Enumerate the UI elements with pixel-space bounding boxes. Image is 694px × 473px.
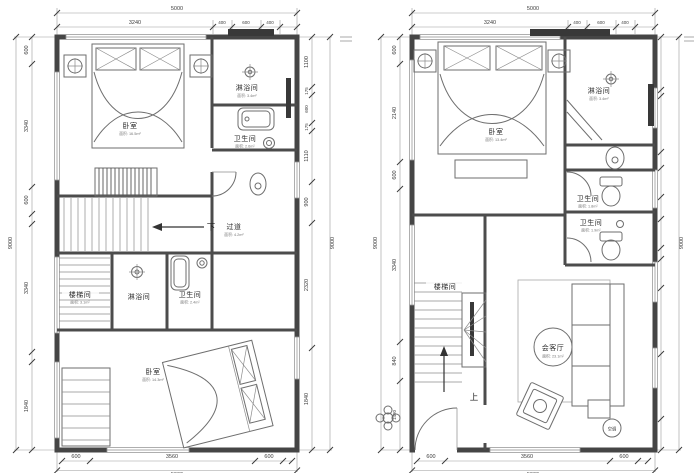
room-area: 面积: 3.1m²	[70, 300, 90, 305]
room-label: 卫生间	[580, 218, 603, 227]
room-toilet-lower: 卫生间 面积: 1.9m²	[567, 218, 624, 262]
dim-label: 600	[597, 20, 605, 25]
floor-plan-drawing: 5000 3240 400 600 400 9000 600 3340 600 …	[0, 0, 694, 473]
dim-label: 3240	[129, 20, 141, 26]
dim-label: 400	[218, 20, 226, 25]
room-bedroom: 卧室 面积: 13.4m²	[414, 42, 570, 178]
room-area: 面积: 13.4m²	[485, 137, 507, 142]
room-label: 楼梯间	[69, 290, 92, 299]
ceiling-lamp-icon	[548, 50, 570, 72]
room-shower: 淋浴间 面积: 3.4m²	[567, 71, 654, 140]
dim-bottom: 600 3560 600 5000	[409, 454, 658, 473]
dim-label: 400	[621, 20, 629, 25]
dim-left: 9000 600 2140 600 3340 840 1480	[373, 34, 403, 453]
dim-label: 3240	[484, 20, 496, 26]
dim-label: 840	[392, 356, 398, 365]
stair-treads	[414, 283, 462, 382]
toilet	[600, 232, 622, 260]
room-area: 面积: 23.1m²	[542, 354, 564, 359]
dim-label: 600	[392, 45, 398, 54]
stair-treads	[64, 198, 148, 251]
room-toilet-upper: 卫生间 面积: 1.8m²	[567, 172, 622, 209]
floor-plan-left: 5000 3240 400 600 400 9000 600 3340 600 …	[8, 6, 352, 473]
room-stairwell: 楼梯间 面积: 3.1m²	[59, 258, 110, 321]
up-label: 上	[470, 392, 479, 402]
corridor-stairs: 下 过道 面积: 4.2m²	[64, 168, 244, 251]
door-leaf	[286, 78, 291, 118]
room-area: 面积: 14.3m²	[142, 377, 164, 382]
dim-top: 5000 3240 400 600 400	[409, 6, 658, 30]
stair-flight	[95, 168, 157, 196]
dim-label: 1100	[304, 56, 310, 68]
toilet	[600, 177, 622, 206]
ac-badge: 空调	[603, 419, 621, 437]
down-label: 下	[207, 222, 216, 232]
room-label: 卧室	[146, 367, 161, 376]
room-area: 面积: 2.6m²	[235, 144, 255, 149]
room-toilet-mid: 卫生间 面积: 2.4m²	[171, 256, 207, 305]
dim-label: 3340	[24, 282, 30, 294]
dim-label: 600	[426, 454, 435, 460]
room-label: 卧室	[123, 121, 138, 130]
room-label: 卫生间	[179, 290, 202, 299]
dim-label: 400	[573, 20, 581, 25]
washbasin	[197, 258, 207, 268]
level-mark	[340, 37, 352, 41]
dim-label: 400	[266, 20, 274, 25]
room-bedroom-top: 卧室 面积: 16.5m²	[64, 44, 212, 148]
dim-label: 175	[304, 87, 309, 95]
room-area: 面积: 1.8m²	[578, 204, 598, 209]
room-stairwell: 楼梯间 上	[414, 282, 486, 450]
dim-label: 3560	[521, 454, 533, 460]
room-living: 会客厅 面积: 23.1m² 空调	[516, 280, 624, 437]
dim-label: 9000	[373, 237, 379, 249]
room-label: 淋浴间	[128, 292, 151, 301]
room-shower-mid: 淋浴间	[128, 264, 151, 301]
floor-plan-svg: 5000 3240 400 600 400 9000 600 3340 600 …	[0, 0, 694, 473]
dim-label: 9000	[8, 237, 14, 249]
dim-label: 9000	[679, 237, 685, 249]
washbasin	[250, 173, 266, 195]
dim-label: 600	[304, 105, 309, 113]
washbasin-niche	[606, 147, 624, 169]
door-leaf	[648, 84, 654, 126]
dim-label: 5000	[527, 6, 539, 12]
washbasin	[606, 147, 624, 169]
room-area: 面积: 3.4m²	[237, 93, 257, 98]
room-area: 面积: 1.9m²	[581, 228, 601, 233]
bed	[162, 340, 273, 448]
sofa	[572, 284, 624, 406]
level-mark	[684, 37, 694, 41]
dim-bottom: 600 3560 600 5000	[54, 454, 300, 473]
dim-label: 9000	[330, 237, 336, 249]
room-label: 淋浴间	[588, 86, 611, 95]
stair-rail	[470, 302, 474, 356]
bed-bench	[455, 160, 527, 178]
dim-label: 600	[71, 454, 80, 460]
door-arc	[212, 172, 236, 196]
dim-label: 2320	[304, 279, 310, 291]
room-area: 面积: 2.4m²	[180, 300, 200, 305]
chair	[516, 382, 564, 430]
bathtub	[171, 256, 189, 290]
dim-label: 1110	[304, 150, 310, 161]
dim-label: 5000	[171, 6, 183, 12]
room-label: 卫生间	[234, 134, 257, 143]
dim-label: 3340	[392, 259, 398, 271]
exhaust-fan-icon	[617, 221, 624, 228]
side-table	[588, 400, 610, 418]
dim-label: 175	[304, 123, 309, 131]
dim-label: 3340	[24, 120, 30, 132]
room-label: 过道	[227, 222, 242, 231]
wardrobe	[62, 368, 110, 446]
dim-label: 600	[619, 454, 628, 460]
ceiling-lamp-icon	[414, 50, 436, 72]
room-label: 卫生间	[577, 194, 600, 203]
dim-right: 1100 175 600 175 1110 900 2320 1840 9000	[304, 34, 336, 453]
dim-top: 5000 3240 400 600 400	[54, 6, 300, 30]
room-area: 面积: 3.4m²	[589, 96, 609, 101]
room-label: 会客厅	[542, 343, 565, 352]
entry-door-arc	[415, 408, 457, 450]
room-bedroom-bottom: 卧室 面积: 14.3m²	[62, 340, 273, 448]
door-opening	[415, 448, 457, 453]
exhaust-fan-icon	[242, 64, 258, 80]
dim-label: 2140	[392, 107, 398, 119]
window-lintel	[228, 29, 274, 36]
dim-label: 600	[392, 170, 398, 179]
dim-label: 600	[242, 20, 250, 25]
bathtub	[238, 108, 274, 130]
room-label: 卧室	[489, 127, 504, 136]
room-label: 楼梯间	[434, 282, 457, 291]
dim-label: 1840	[24, 400, 30, 412]
lobby-area	[212, 172, 266, 196]
ac-label: 空调	[608, 426, 617, 433]
exhaust-fan-icon	[603, 71, 619, 87]
ceiling-lamp-icon	[190, 55, 212, 77]
room-toilet-top: 卫生间 面积: 2.6m²	[234, 108, 275, 149]
up-arrow-head	[440, 346, 448, 356]
dim-label: 3560	[166, 454, 178, 460]
door-arc	[567, 172, 591, 196]
ceiling-lamp-icon	[64, 55, 86, 77]
dim-label: 900	[304, 197, 310, 206]
dim-label: 600	[264, 454, 273, 460]
exhaust-fan-icon	[129, 264, 145, 280]
stair-treads	[59, 258, 110, 321]
dim-label: 600	[24, 45, 30, 54]
room-area: 面积: 4.2m²	[224, 232, 244, 237]
shower-door	[567, 100, 602, 140]
washbasin	[264, 138, 275, 149]
window-lintel	[530, 29, 610, 36]
floor-plan-right: 5000 3240 400 600 400 9000 600 2140 600 …	[373, 6, 694, 473]
dim-left: 9000 600 3340 600 3340 1840	[8, 34, 35, 453]
down-arrow-head	[152, 223, 162, 231]
room-label: 淋浴间	[236, 83, 259, 92]
dim-label: 600	[24, 195, 30, 204]
room-area: 面积: 16.5m²	[119, 131, 141, 136]
dim-label: 1840	[304, 393, 310, 405]
door-arc	[567, 238, 591, 262]
